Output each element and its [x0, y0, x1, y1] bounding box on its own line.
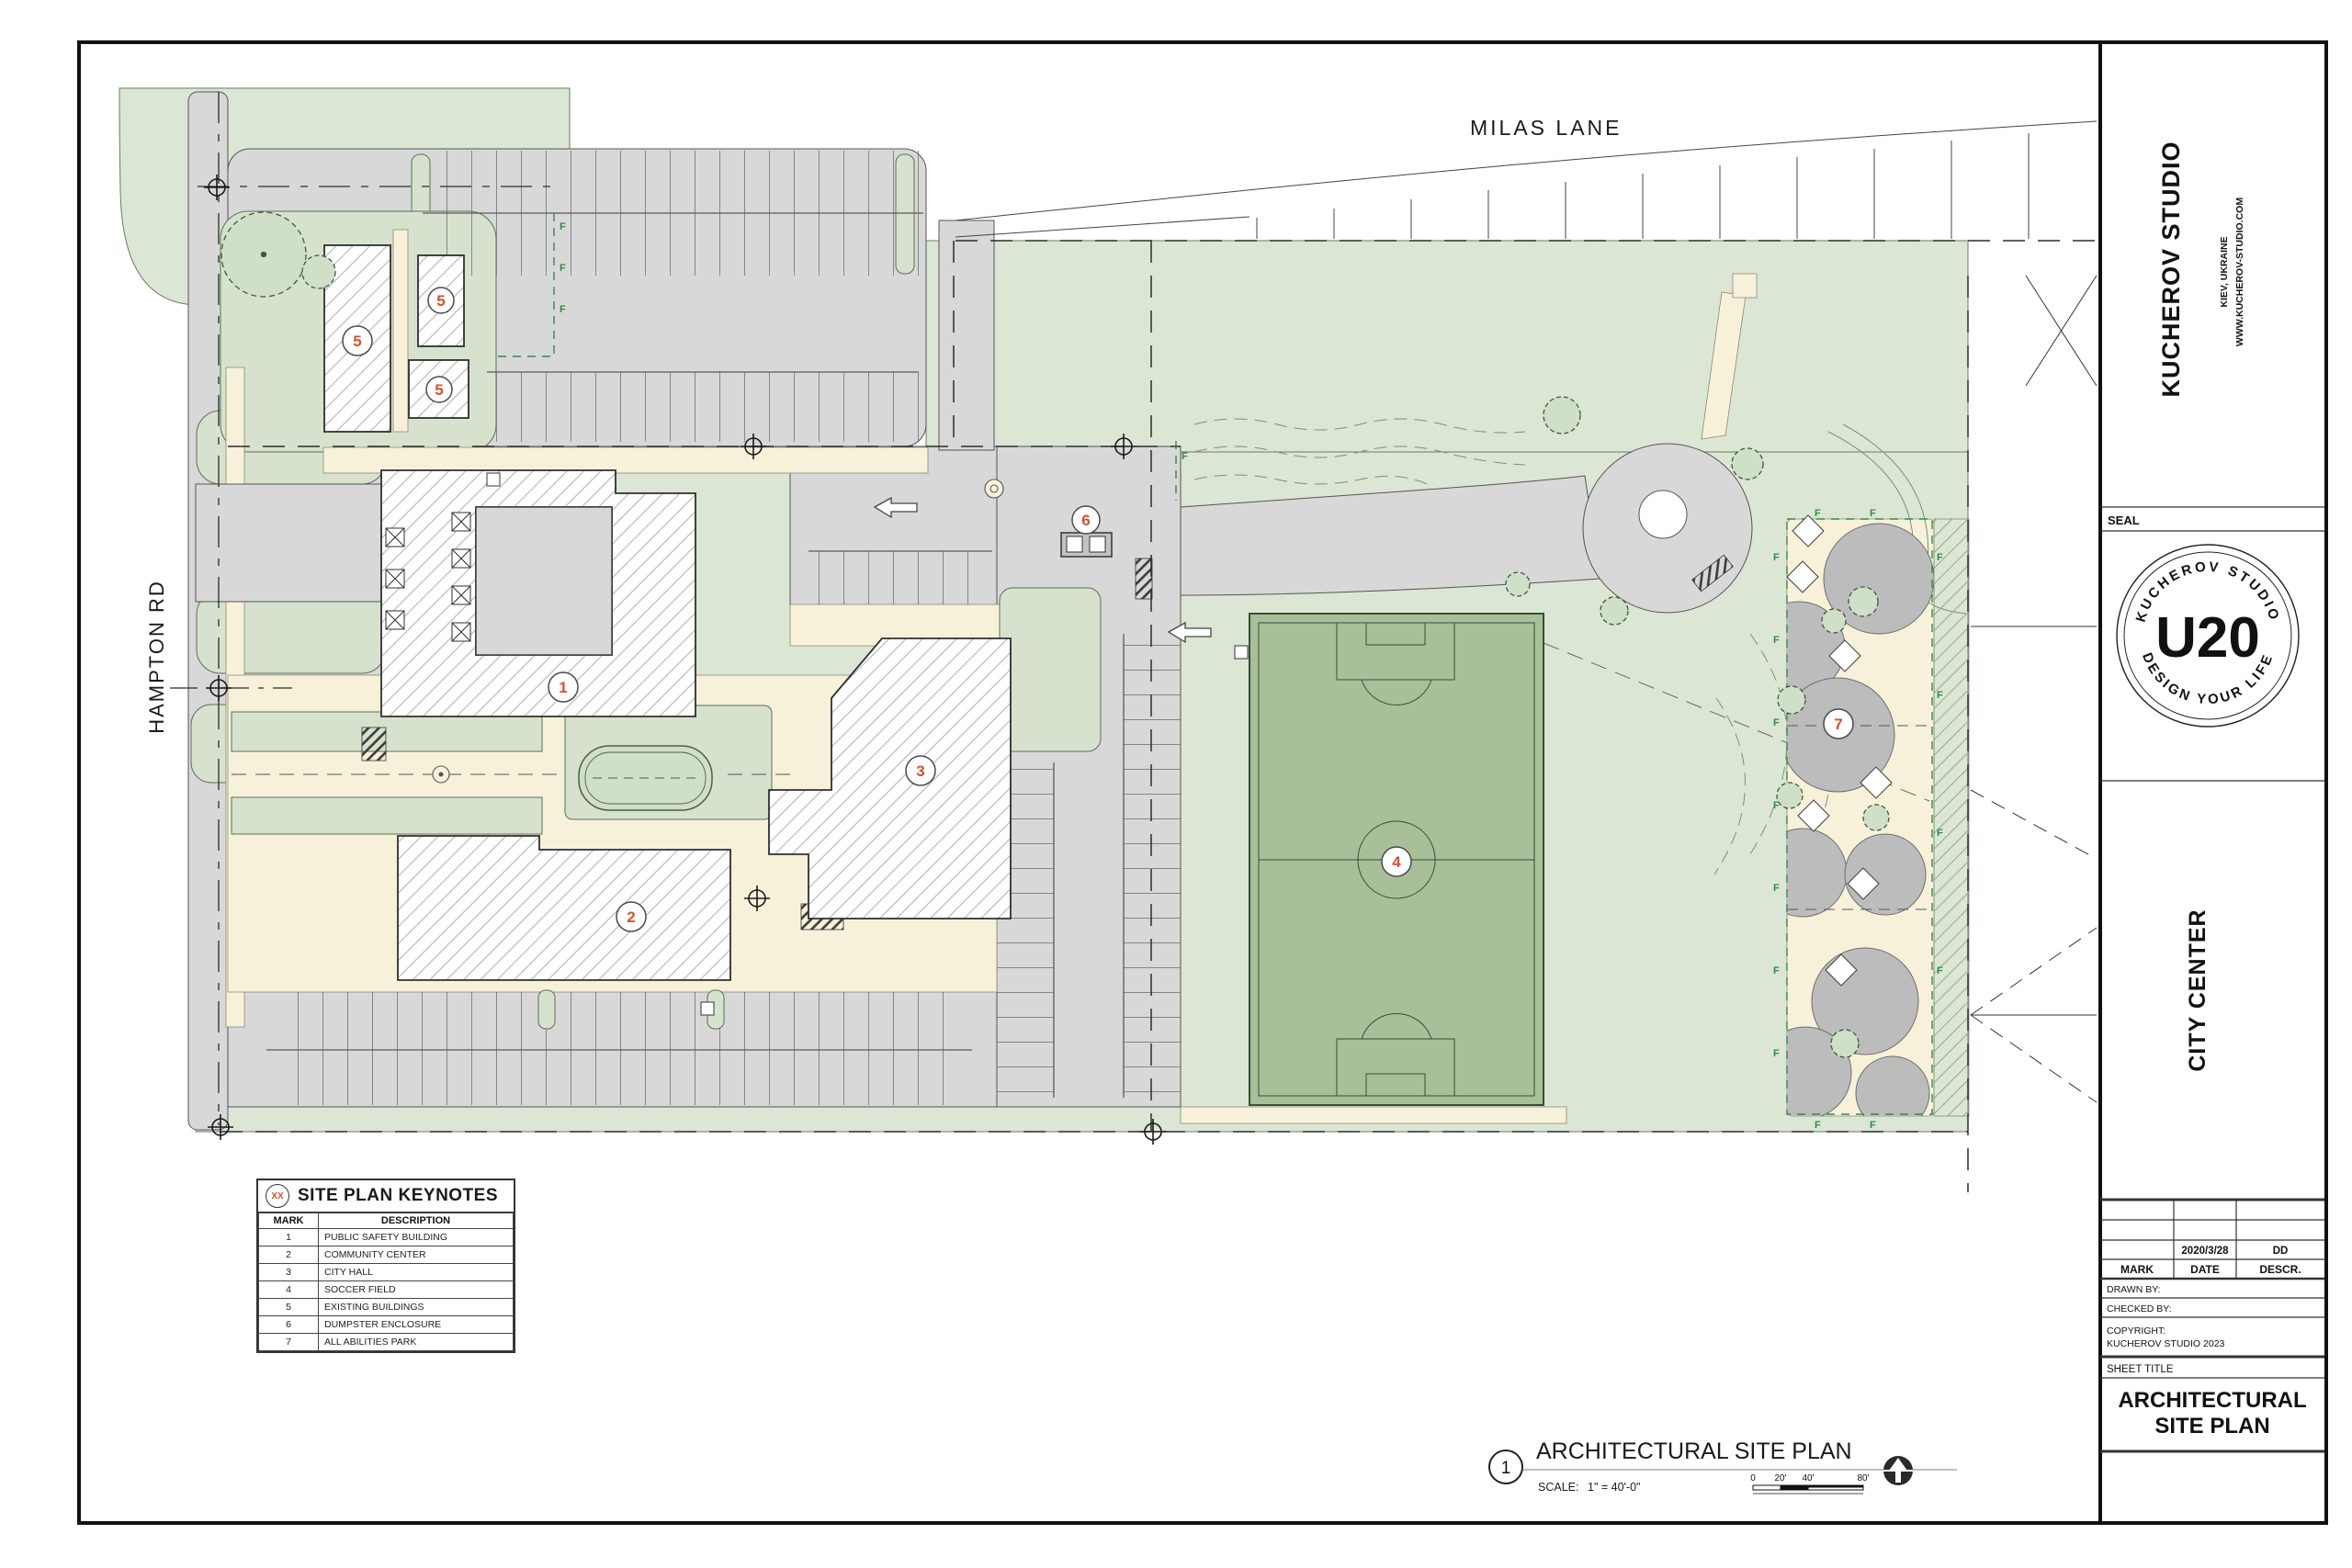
keynotes-title-row: XX SITE PLAN KEYNOTES — [258, 1180, 514, 1213]
table-row: 2COMMUNITY CENTER — [259, 1247, 514, 1264]
badge-1: 1 — [559, 679, 567, 696]
hammerhead-island — [1639, 491, 1687, 538]
badge-5a: 5 — [353, 333, 361, 350]
badge-5b: 5 — [436, 292, 445, 310]
svg-text:40': 40' — [1802, 1473, 1814, 1483]
svg-text:F: F — [1773, 552, 1780, 563]
seal-logo: U20 — [2155, 606, 2260, 670]
sheet-title-line2: SITE PLAN — [2154, 1414, 2269, 1438]
svg-text:F: F — [1182, 451, 1188, 462]
revision-date: 2020/3/28 — [2181, 1246, 2229, 1257]
svg-text:F: F — [1773, 883, 1780, 894]
studio-name: KUCHEROV STUDIO — [2157, 141, 2185, 397]
keynotes-table: XX SITE PLAN KEYNOTES MARK DESCRIPTION 1… — [256, 1179, 515, 1353]
table-row: 3CITY HALL — [259, 1264, 514, 1281]
sheet-title-line1: ARCHITECTURAL — [2118, 1388, 2306, 1413]
table-row: 1PUBLIC SAFETY BUILDING — [259, 1229, 514, 1247]
badge-2: 2 — [627, 908, 635, 926]
svg-text:F: F — [1773, 965, 1780, 976]
svg-text:F: F — [1815, 1120, 1821, 1131]
plan-area: F F F F F F F F F F F F F F F F F F F 1 … — [119, 88, 2097, 1192]
badge-7: 7 — [1834, 716, 1842, 733]
svg-text:F: F — [1937, 828, 1943, 839]
revision-header-date: DATE — [2190, 1263, 2220, 1276]
north-arrow-icon — [1883, 1456, 1913, 1485]
drawing-title-bar: 1 ARCHITECTURAL SITE PLAN SCALE: 1" = 40… — [1489, 1438, 1957, 1494]
drawing-number: 1 — [1501, 1459, 1511, 1478]
badge-6: 6 — [1081, 512, 1090, 529]
title-block: KUCHEROV STUDIO KIEV, UKRAINE WWW.KUCHER… — [2100, 141, 2324, 1451]
milas-lane-label: MILAS LANE — [1470, 116, 1623, 140]
park-buffer-strip — [1934, 519, 1969, 1116]
svg-text:F: F — [1773, 1048, 1780, 1059]
table-row: 5EXISTING BUILDINGS — [259, 1299, 514, 1316]
seal-label: SEAL — [2108, 513, 2140, 527]
copyright-label: COPYRIGHT: — [2107, 1325, 2165, 1337]
project-name: CITY CENTER — [2185, 908, 2211, 1071]
svg-text:0: 0 — [1750, 1473, 1756, 1483]
revision-header-descr: DESCR. — [2259, 1263, 2301, 1276]
revision-descr: DD — [2273, 1246, 2289, 1257]
revision-header-mark: MARK — [2120, 1263, 2154, 1276]
copyright-value: KUCHEROV STUDIO 2023 — [2107, 1338, 2225, 1349]
keynotes-title: SITE PLAN KEYNOTES — [298, 1186, 498, 1206]
table-row: 7ALL ABILITIES PARK — [259, 1334, 514, 1351]
badge-3: 3 — [916, 762, 924, 780]
revision-table: 2020/3/28 DD MARK DATE DESCR. — [2120, 1246, 2301, 1276]
studio-seal: KUCHEROV STUDIO DESIGN YOUR LIFE U20 — [2117, 545, 2299, 727]
table-row: 6DUMPSTER ENCLOSURE — [259, 1316, 514, 1334]
sheet-title-label: SHEET TITLE — [2107, 1364, 2174, 1375]
svg-text:F: F — [1773, 635, 1780, 646]
svg-text:20': 20' — [1774, 1473, 1786, 1483]
drawn-by-label: DRAWN BY: — [2107, 1284, 2161, 1295]
svg-text:F: F — [560, 221, 566, 232]
milas-entry-drive — [939, 220, 994, 450]
svg-text:F: F — [1773, 717, 1780, 728]
svg-text:F: F — [1773, 800, 1780, 811]
scale-label: SCALE: — [1538, 1481, 1578, 1494]
planter-pool — [579, 746, 712, 810]
keynotes-header-mark: MARK — [259, 1213, 319, 1229]
svg-text:F: F — [1815, 508, 1821, 519]
scale-value: 1" = 40'-0" — [1588, 1481, 1640, 1494]
drawing-sheet: F F F F F F F F F F F F F F F F F F F 1 … — [0, 0, 2352, 1568]
checked-by-label: CHECKED BY: — [2107, 1303, 2172, 1314]
studio-website: WWW.KUCHEROV-STUDIO.COM — [2234, 197, 2245, 346]
hampton-rd-label: HAMPTON RD — [145, 580, 168, 734]
svg-text:F: F — [1937, 965, 1943, 976]
matchline-callouts — [1971, 276, 2097, 1102]
svg-text:F: F — [560, 304, 566, 315]
main-entry-drive — [196, 484, 384, 602]
svg-text:F: F — [1937, 690, 1943, 701]
dumpster-enclosure — [1061, 533, 1112, 557]
svg-text:F: F — [1870, 1120, 1876, 1131]
keynotes-header-desc: DESCRIPTION — [319, 1213, 514, 1229]
scale-bar: 0 20' 40' 80' — [1750, 1473, 1869, 1494]
studio-location: KIEV, UKRAINE — [2219, 236, 2230, 307]
keynote-symbol: XX — [266, 1184, 289, 1208]
svg-text:80': 80' — [1857, 1473, 1869, 1483]
badge-4: 4 — [1392, 853, 1401, 871]
svg-text:F: F — [1870, 508, 1876, 519]
building-community-center — [398, 836, 730, 980]
svg-text:F: F — [1937, 552, 1943, 563]
badge-5c: 5 — [435, 381, 443, 399]
svg-text:F: F — [560, 263, 566, 274]
drawing-title: ARCHITECTURAL SITE PLAN — [1536, 1438, 1852, 1464]
table-row: 4SOCCER FIELD — [259, 1281, 514, 1299]
